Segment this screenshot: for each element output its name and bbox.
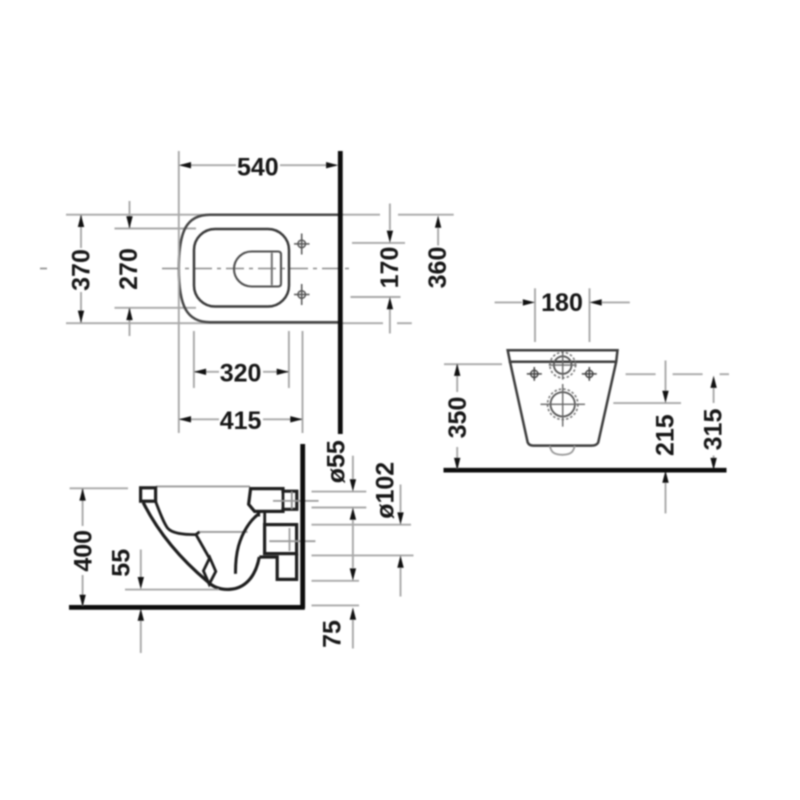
- svg-text:370: 370: [68, 249, 96, 291]
- svg-text:320: 320: [220, 359, 262, 387]
- svg-text:315: 315: [700, 409, 728, 451]
- svg-text:ø102: ø102: [372, 462, 400, 519]
- svg-text:215: 215: [652, 414, 680, 456]
- svg-text:415: 415: [220, 407, 262, 435]
- svg-text:540: 540: [237, 154, 279, 182]
- svg-text:170: 170: [376, 247, 404, 289]
- svg-text:350: 350: [444, 397, 472, 439]
- svg-text:75: 75: [319, 620, 347, 648]
- svg-text:180: 180: [541, 289, 583, 317]
- svg-text:360: 360: [424, 247, 452, 289]
- svg-text:ø55: ø55: [322, 440, 350, 483]
- svg-text:400: 400: [69, 530, 97, 572]
- svg-text:270: 270: [115, 248, 143, 290]
- svg-text:55: 55: [108, 549, 136, 577]
